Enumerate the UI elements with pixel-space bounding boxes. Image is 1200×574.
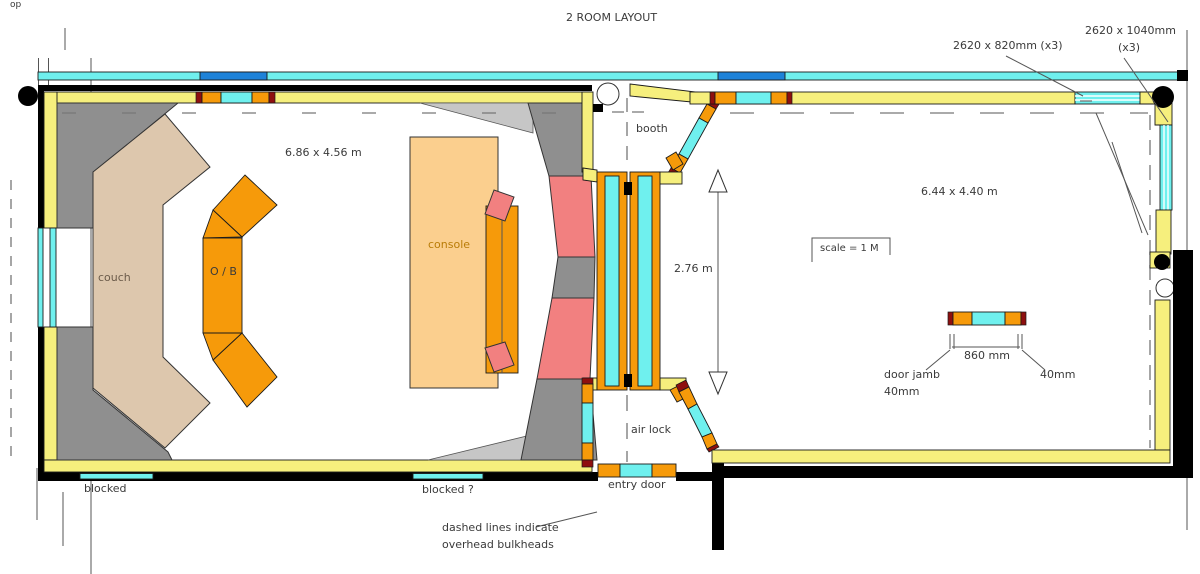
ob-position-shape — [203, 175, 277, 407]
booth-window-glass — [679, 118, 708, 159]
bulkhead-note-line1: dashed lines indicate — [442, 522, 559, 534]
booth-column — [597, 83, 619, 105]
top-window-band — [38, 70, 1188, 81]
column-right-mid — [1154, 254, 1170, 270]
window-right-label-line2: (x3) — [1118, 42, 1140, 54]
blocked-center-label: blocked ? — [422, 484, 474, 496]
left-wall-window — [38, 228, 56, 327]
right-room-size-label: 6.44 x 4.40 m — [921, 186, 998, 198]
door-jamb-label-line2: 40mm — [884, 386, 919, 398]
door-jamb-right-label: 40mm — [1040, 369, 1075, 381]
column-top-left — [18, 86, 38, 106]
absorber-panel-upper — [549, 176, 595, 257]
window-2620x1040 — [1160, 125, 1172, 210]
window-right-label-line1: 2620 x 1040mm — [1085, 25, 1176, 37]
left-room-size-label: 6.86 x 4.56 m — [285, 147, 362, 159]
ob-label: O / B — [210, 266, 237, 278]
corner-note: op — [10, 1, 21, 11]
page-title: 2 ROOM LAYOUT — [566, 12, 657, 24]
console-shape — [410, 137, 518, 388]
control-room-top-window — [196, 92, 275, 103]
window-2620x820 — [1075, 92, 1140, 104]
pole-right-mid — [1156, 279, 1174, 297]
airlock-doors — [582, 378, 724, 550]
booth-label: booth — [636, 123, 668, 135]
console-label: console — [428, 239, 470, 251]
window-top-label: 2620 x 820mm (x3) — [953, 40, 1063, 52]
door-width-label: 860 mm — [964, 350, 1010, 362]
absorber-panel-lower — [537, 298, 594, 379]
bulkhead-note-line2: overhead bulkheads — [442, 539, 554, 551]
blocked-left-label: blocked — [84, 483, 127, 495]
door-jamb-label-line1: door jamb — [884, 369, 940, 381]
couch-label: couch — [98, 272, 131, 284]
live-room-walls — [690, 86, 1193, 478]
floor-plan-drawing — [0, 0, 1200, 574]
blocked-window-left — [80, 474, 153, 480]
airlock-label: air lock — [631, 424, 671, 436]
airlock-width-label: 2.76 m — [674, 263, 713, 275]
floor-plan-2-room-layout: op 2 ROOM LAYOUT 2620 x 820mm (x3) 2620 … — [0, 0, 1200, 574]
wedge-top-right — [420, 103, 533, 133]
airlock-window-units — [583, 152, 687, 402]
scale-label: scale = 1 M — [820, 243, 879, 254]
column-top-right — [1152, 86, 1174, 108]
entry-door-label: entry door — [608, 479, 666, 491]
airlock-width-dimension — [709, 170, 727, 394]
entry-door-shape — [598, 464, 676, 477]
blocked-window-center — [413, 474, 483, 480]
live-room-top-window — [710, 92, 792, 104]
